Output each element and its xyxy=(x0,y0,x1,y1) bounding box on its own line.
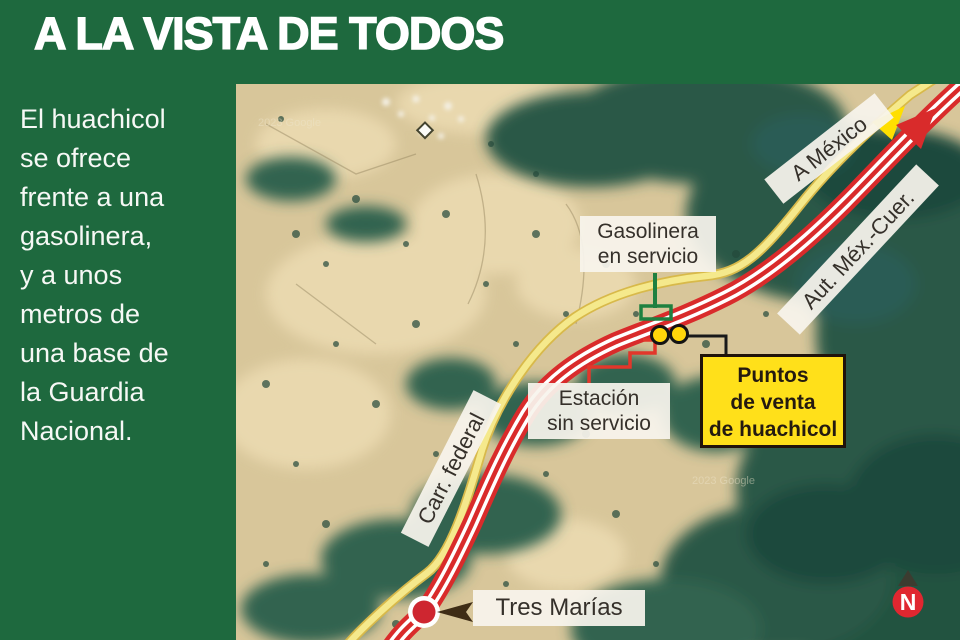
label-line: de venta xyxy=(703,389,843,416)
intro-line: una base de xyxy=(20,334,235,373)
huachicol-point-marker xyxy=(652,327,669,344)
label-line: Gasolinera xyxy=(586,219,710,244)
gasolinera-en-servicio-label: Gasolinera en servicio xyxy=(580,216,716,272)
label-line: de huachicol xyxy=(703,416,843,443)
map-watermark: 2023 Google xyxy=(692,475,755,487)
intro-paragraph: El huachicol se ofrece frente a una gaso… xyxy=(20,100,235,451)
tres-marias-marker xyxy=(408,596,440,628)
intro-line: gasolinera, xyxy=(20,217,235,256)
label-line: Puntos xyxy=(703,362,843,389)
intro-line: metros de xyxy=(20,295,235,334)
estacion-sin-servicio-label: Estación sin servicio xyxy=(528,383,670,439)
label-line: sin servicio xyxy=(534,411,664,436)
intro-line: El huachicol xyxy=(20,100,235,139)
intro-line: Nacional. xyxy=(20,412,235,451)
intro-line: la Guardia xyxy=(20,373,235,412)
satellite-imagery: 2023 Google 2023 Google xyxy=(236,84,960,640)
intro-line: se ofrece xyxy=(20,139,235,178)
page-title: A LA VISTA DE TODOS xyxy=(34,8,934,60)
satellite-map: 2023 Google 2023 Google xyxy=(236,84,960,640)
intro-line: frente a una xyxy=(20,178,235,217)
map-watermark: 2023 Google xyxy=(258,117,321,129)
intro-line: y a unos xyxy=(20,256,235,295)
infographic: A LA VISTA DE TODOS El huachicol se ofre… xyxy=(0,0,960,640)
north-letter: N xyxy=(900,589,917,615)
puntos-de-venta-callout: Puntos de venta de huachicol xyxy=(700,354,846,448)
tres-marias-label: Tres Marías xyxy=(473,590,645,626)
label-line: en servicio xyxy=(586,244,710,269)
label-line: Estación xyxy=(534,386,664,411)
huachicol-point-marker xyxy=(671,326,688,343)
